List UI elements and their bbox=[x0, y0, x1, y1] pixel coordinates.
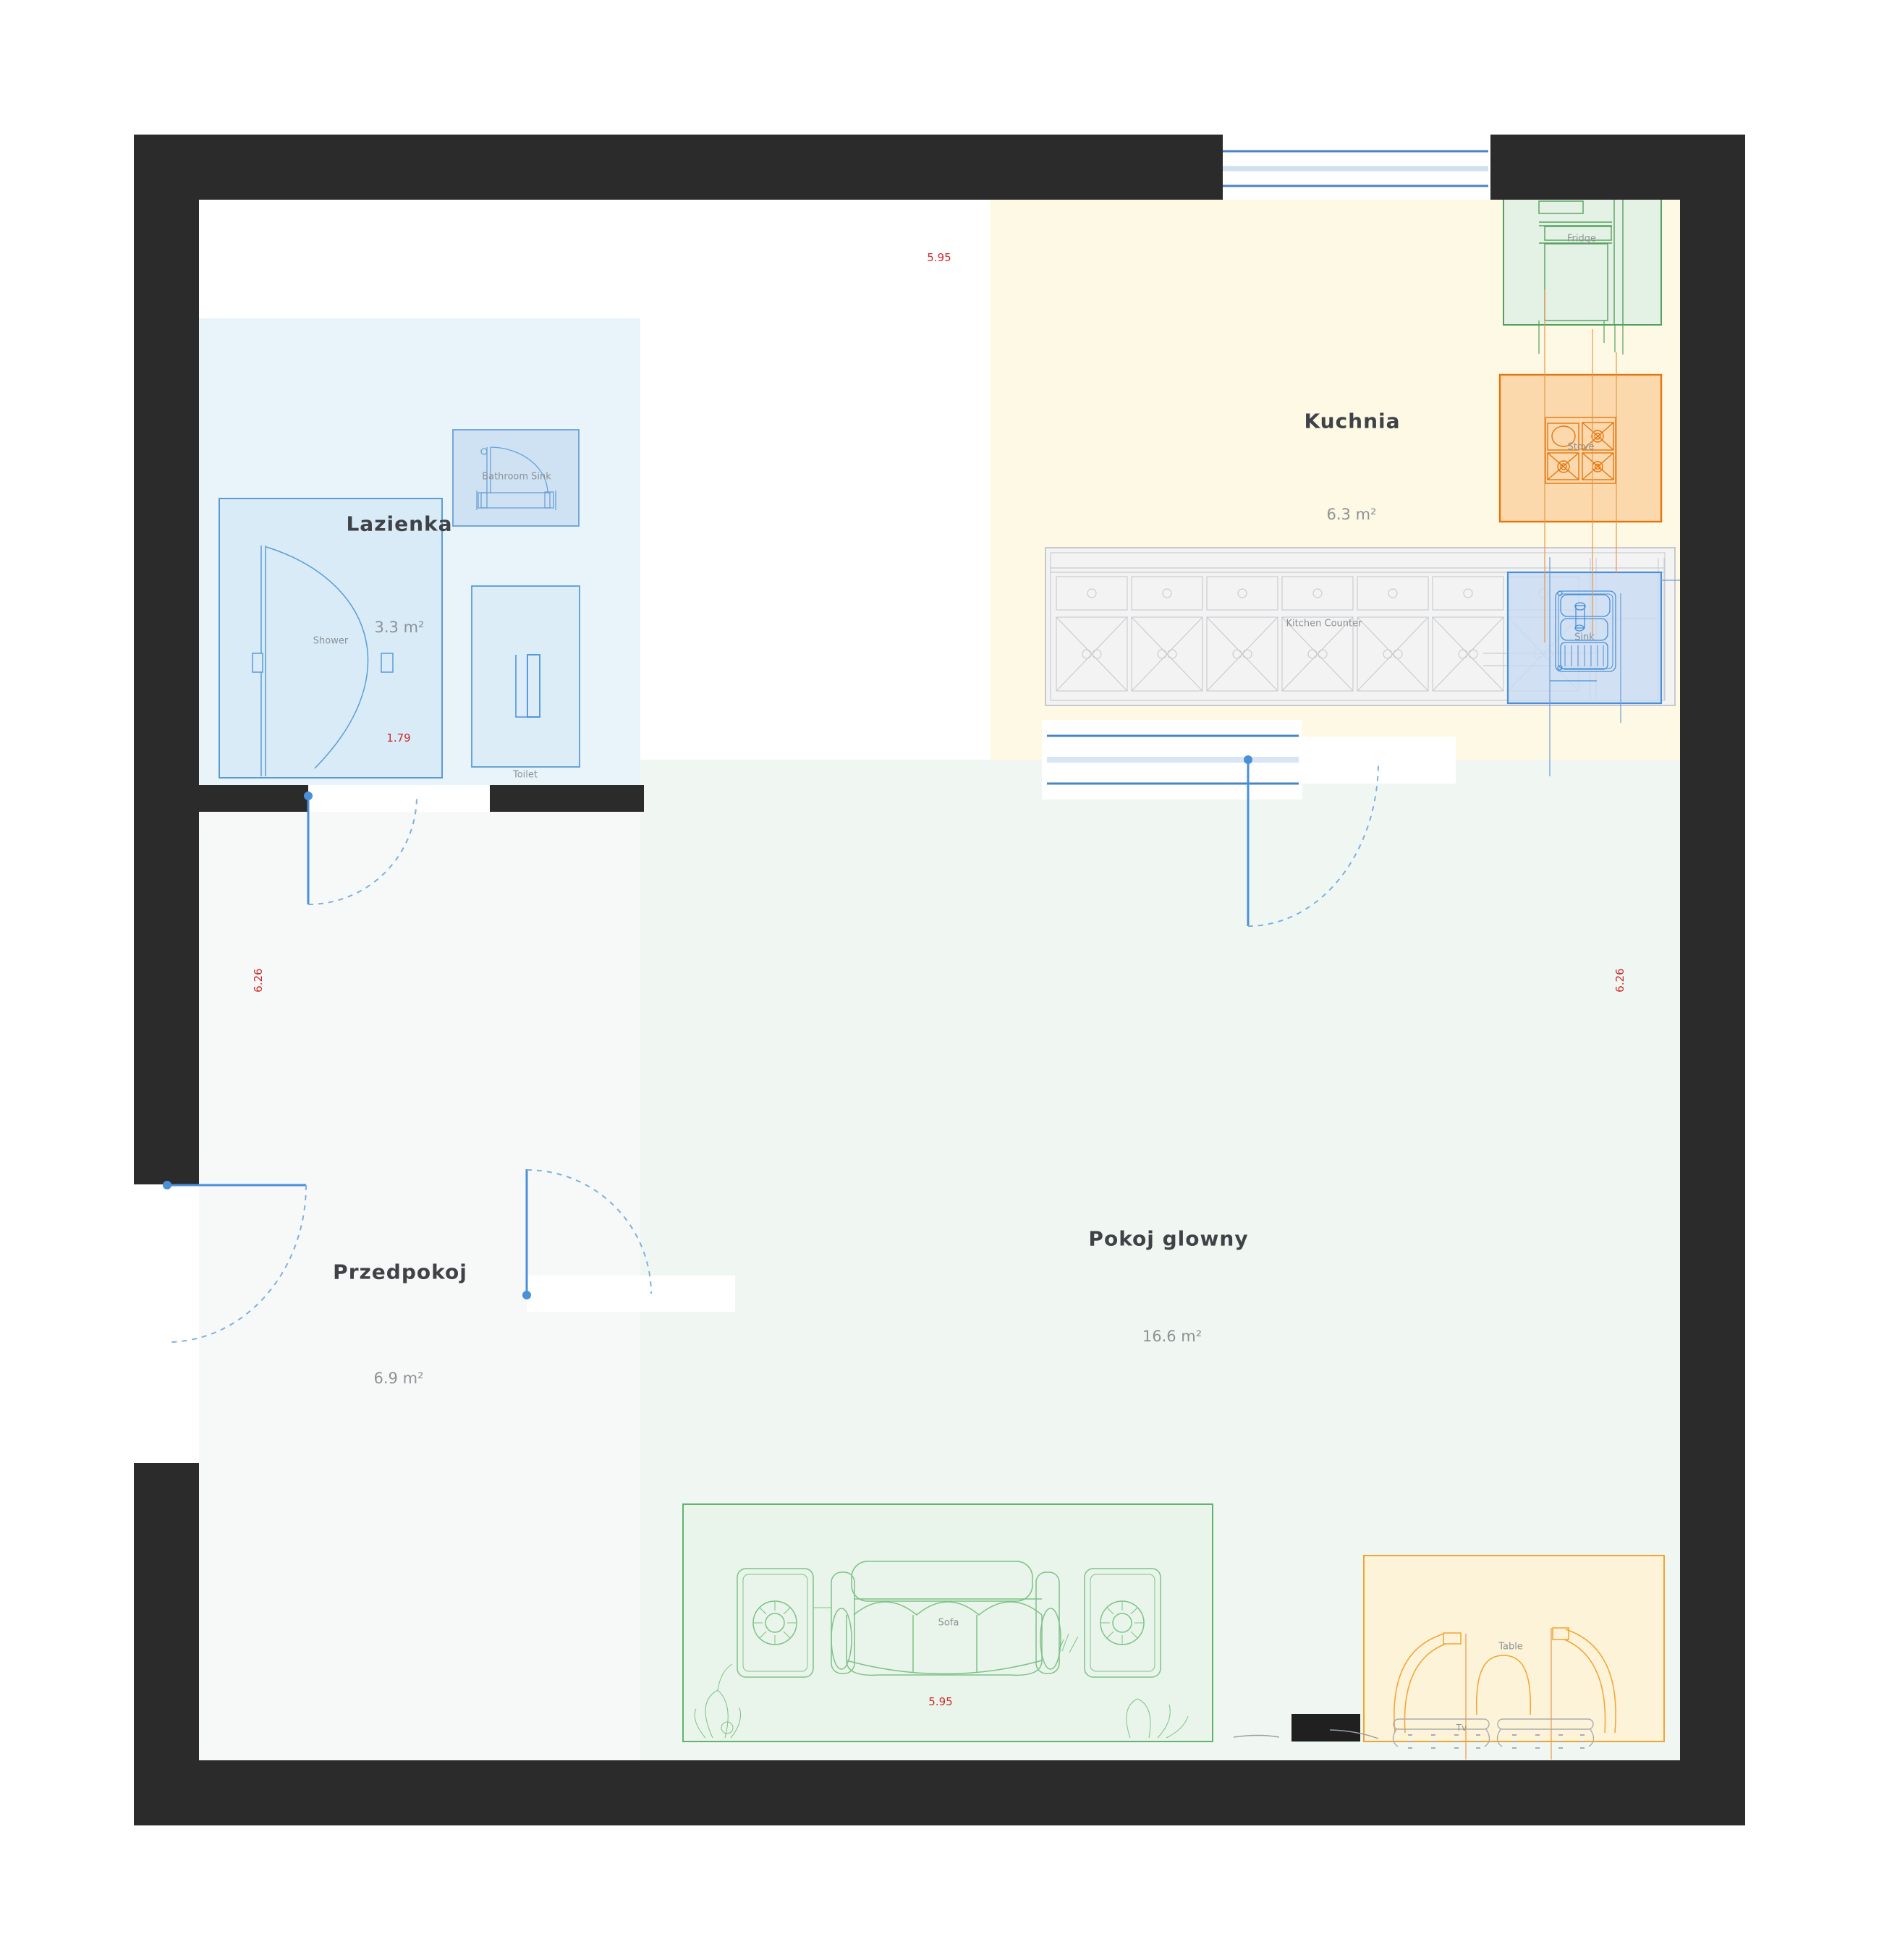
table bbox=[1364, 1556, 1664, 1741]
shower bbox=[219, 499, 442, 778]
window-top bbox=[1223, 135, 1490, 200]
sofa bbox=[683, 1504, 1213, 1741]
bathroom-sink bbox=[453, 430, 579, 526]
stove bbox=[1500, 375, 1661, 522]
toilet bbox=[472, 586, 580, 767]
kitchen-sink bbox=[1508, 572, 1661, 703]
opening-hall-living bbox=[527, 1276, 735, 1312]
floor-plan: Lazienka 3.3 m² Kuchnia 6.3 m² Przedpoko… bbox=[0, 0, 1879, 1960]
plan-drawing bbox=[0, 0, 1879, 1960]
fridge bbox=[1503, 195, 1661, 325]
